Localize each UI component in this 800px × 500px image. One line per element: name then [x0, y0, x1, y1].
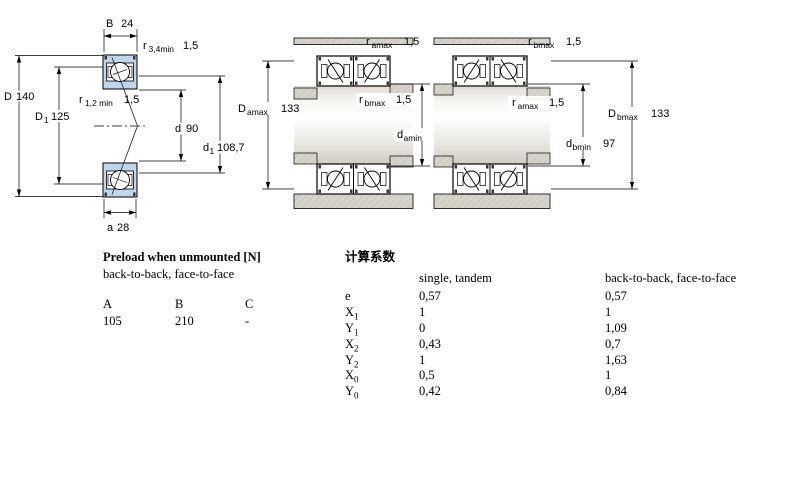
svg-text:1,5: 1,5	[396, 94, 411, 106]
mounting-diagram-a: D amax 133 d amin 97 r amax 1,5 r bmax 1…	[235, 36, 447, 209]
factor-paired-value: 1	[605, 305, 765, 321]
svg-text:1,5: 1,5	[566, 36, 581, 48]
factor-single-value: 1	[419, 305, 605, 321]
factor-paired-value: 0,7	[605, 337, 765, 353]
svg-text:1: 1	[44, 115, 49, 125]
svg-text:bmax: bmax	[534, 40, 556, 50]
svg-text:r: r	[366, 36, 370, 48]
factor-row-label: Y0	[345, 384, 419, 400]
preload-col-A: A	[103, 297, 175, 312]
svg-text:bmin: bmin	[573, 142, 592, 152]
svg-text:125: 125	[51, 111, 69, 123]
label-ramax-b: r amax 1,5	[508, 96, 566, 111]
bearing-cross-section-diagram: B 24 r 3,4min 1,5 D 140 D 1 125	[2, 18, 249, 234]
factor-single-value: 1	[419, 353, 605, 369]
svg-text:bmax: bmax	[617, 112, 639, 122]
svg-text:a: a	[107, 222, 114, 234]
svg-text:D: D	[4, 91, 12, 103]
preload-subtitle: back-to-back, face-to-face	[103, 267, 333, 282]
dimension-Damax: D amax 133	[235, 61, 299, 189]
factor-single-value: 0,5	[419, 368, 605, 384]
svg-text:r: r	[512, 97, 516, 109]
svg-text:D: D	[608, 108, 616, 120]
factor-single-value: 0	[419, 321, 605, 337]
preload-value-B: 210	[175, 314, 245, 329]
svg-text:1,2 min: 1,2 min	[85, 98, 113, 108]
factor-paired-value: 0,84	[605, 384, 765, 400]
svg-text:d: d	[175, 123, 181, 135]
label-B: B	[106, 18, 113, 30]
factor-row-label: X1	[345, 305, 419, 321]
mounting-diagram-b: D bmax 133 d bmin 97 r bmax 1,5 r amax 1…	[434, 36, 669, 209]
factor-paired-value: 1,09	[605, 321, 765, 337]
preload-table: Preload when unmounted [N] back-to-back,…	[103, 250, 333, 329]
housing-bottom	[434, 194, 550, 209]
svg-text:97: 97	[603, 138, 615, 150]
preload-value-A: 105	[103, 314, 175, 329]
factor-row-label: e	[345, 289, 419, 305]
svg-text:d: d	[397, 129, 403, 141]
label-rbmax-a: r bmax 1,5	[356, 93, 416, 108]
svg-text:r: r	[359, 94, 363, 106]
svg-text:140: 140	[16, 91, 34, 103]
svg-text:133: 133	[651, 108, 669, 120]
dimension-D1: D 1 125	[33, 67, 103, 184]
factor-row-label: X2	[345, 337, 419, 353]
bearing-technical-drawing: B 24 r 3,4min 1,5 D 140 D 1 125	[0, 0, 800, 245]
factor-paired-value: 1	[605, 368, 765, 384]
svg-text:amax: amax	[372, 40, 394, 50]
svg-text:1,5: 1,5	[124, 94, 139, 106]
housing-top	[294, 38, 413, 45]
svg-text:r: r	[79, 94, 83, 106]
factor-single-value: 0,57	[419, 289, 605, 305]
dimension-d: d 90	[139, 90, 199, 161]
factor-row-label: X0	[345, 368, 419, 384]
dimension-B: B 24	[104, 18, 137, 52]
svg-text:108,7: 108,7	[217, 142, 245, 154]
dimension-Dbmax: D bmax 133	[551, 61, 669, 189]
svg-text:1,5: 1,5	[183, 40, 198, 52]
svg-text:1,5: 1,5	[404, 36, 419, 48]
catalog-page: B 24 r 3,4min 1,5 D 140 D 1 125	[0, 0, 800, 500]
svg-text:1,5: 1,5	[549, 97, 564, 109]
svg-text:r: r	[528, 36, 532, 48]
factors-col-paired: back-to-back, face-to-face	[605, 271, 765, 289]
factor-single-value: 0,42	[419, 384, 605, 400]
factor-row-label: Y2	[345, 353, 419, 369]
svg-text:3,4min: 3,4min	[149, 44, 175, 54]
factors-title: 计算系数	[345, 250, 765, 265]
svg-text:28: 28	[117, 222, 129, 234]
factors-col-single: single, tandem	[419, 271, 605, 289]
svg-text:amin: amin	[404, 133, 423, 143]
preload-col-B: B	[175, 297, 245, 312]
factor-paired-value: 1,63	[605, 353, 765, 369]
svg-text:133: 133	[281, 103, 299, 115]
svg-text:90: 90	[186, 123, 198, 135]
svg-text:d: d	[566, 138, 572, 150]
label-r34min: r 3,4min 1,5	[143, 40, 198, 54]
housing-bottom	[294, 194, 413, 209]
factor-row-label: Y1	[345, 321, 419, 337]
svg-text:1: 1	[210, 146, 215, 156]
factor-paired-value: 0,57	[605, 289, 765, 305]
dimension-a: a 28	[104, 199, 136, 234]
label-r12min: r 1,2 min 1,5	[79, 94, 139, 108]
preload-title: Preload when unmounted [N]	[103, 250, 333, 265]
svg-text:bmax: bmax	[365, 98, 387, 108]
svg-text:D: D	[238, 103, 246, 115]
svg-text:d: d	[203, 142, 209, 154]
calculation-factors-table: 计算系数 single, tandem back-to-back, face-t…	[345, 250, 765, 400]
svg-text:D: D	[35, 111, 43, 123]
dimension-D: D 140	[2, 56, 103, 197]
factor-single-value: 0,43	[419, 337, 605, 353]
value-B: 24	[121, 18, 133, 30]
svg-text:amax: amax	[518, 101, 540, 111]
svg-text:r: r	[143, 40, 147, 52]
preload-col-C: C	[245, 297, 305, 312]
svg-text:amax: amax	[247, 107, 269, 117]
preload-value-C: -	[245, 314, 305, 329]
